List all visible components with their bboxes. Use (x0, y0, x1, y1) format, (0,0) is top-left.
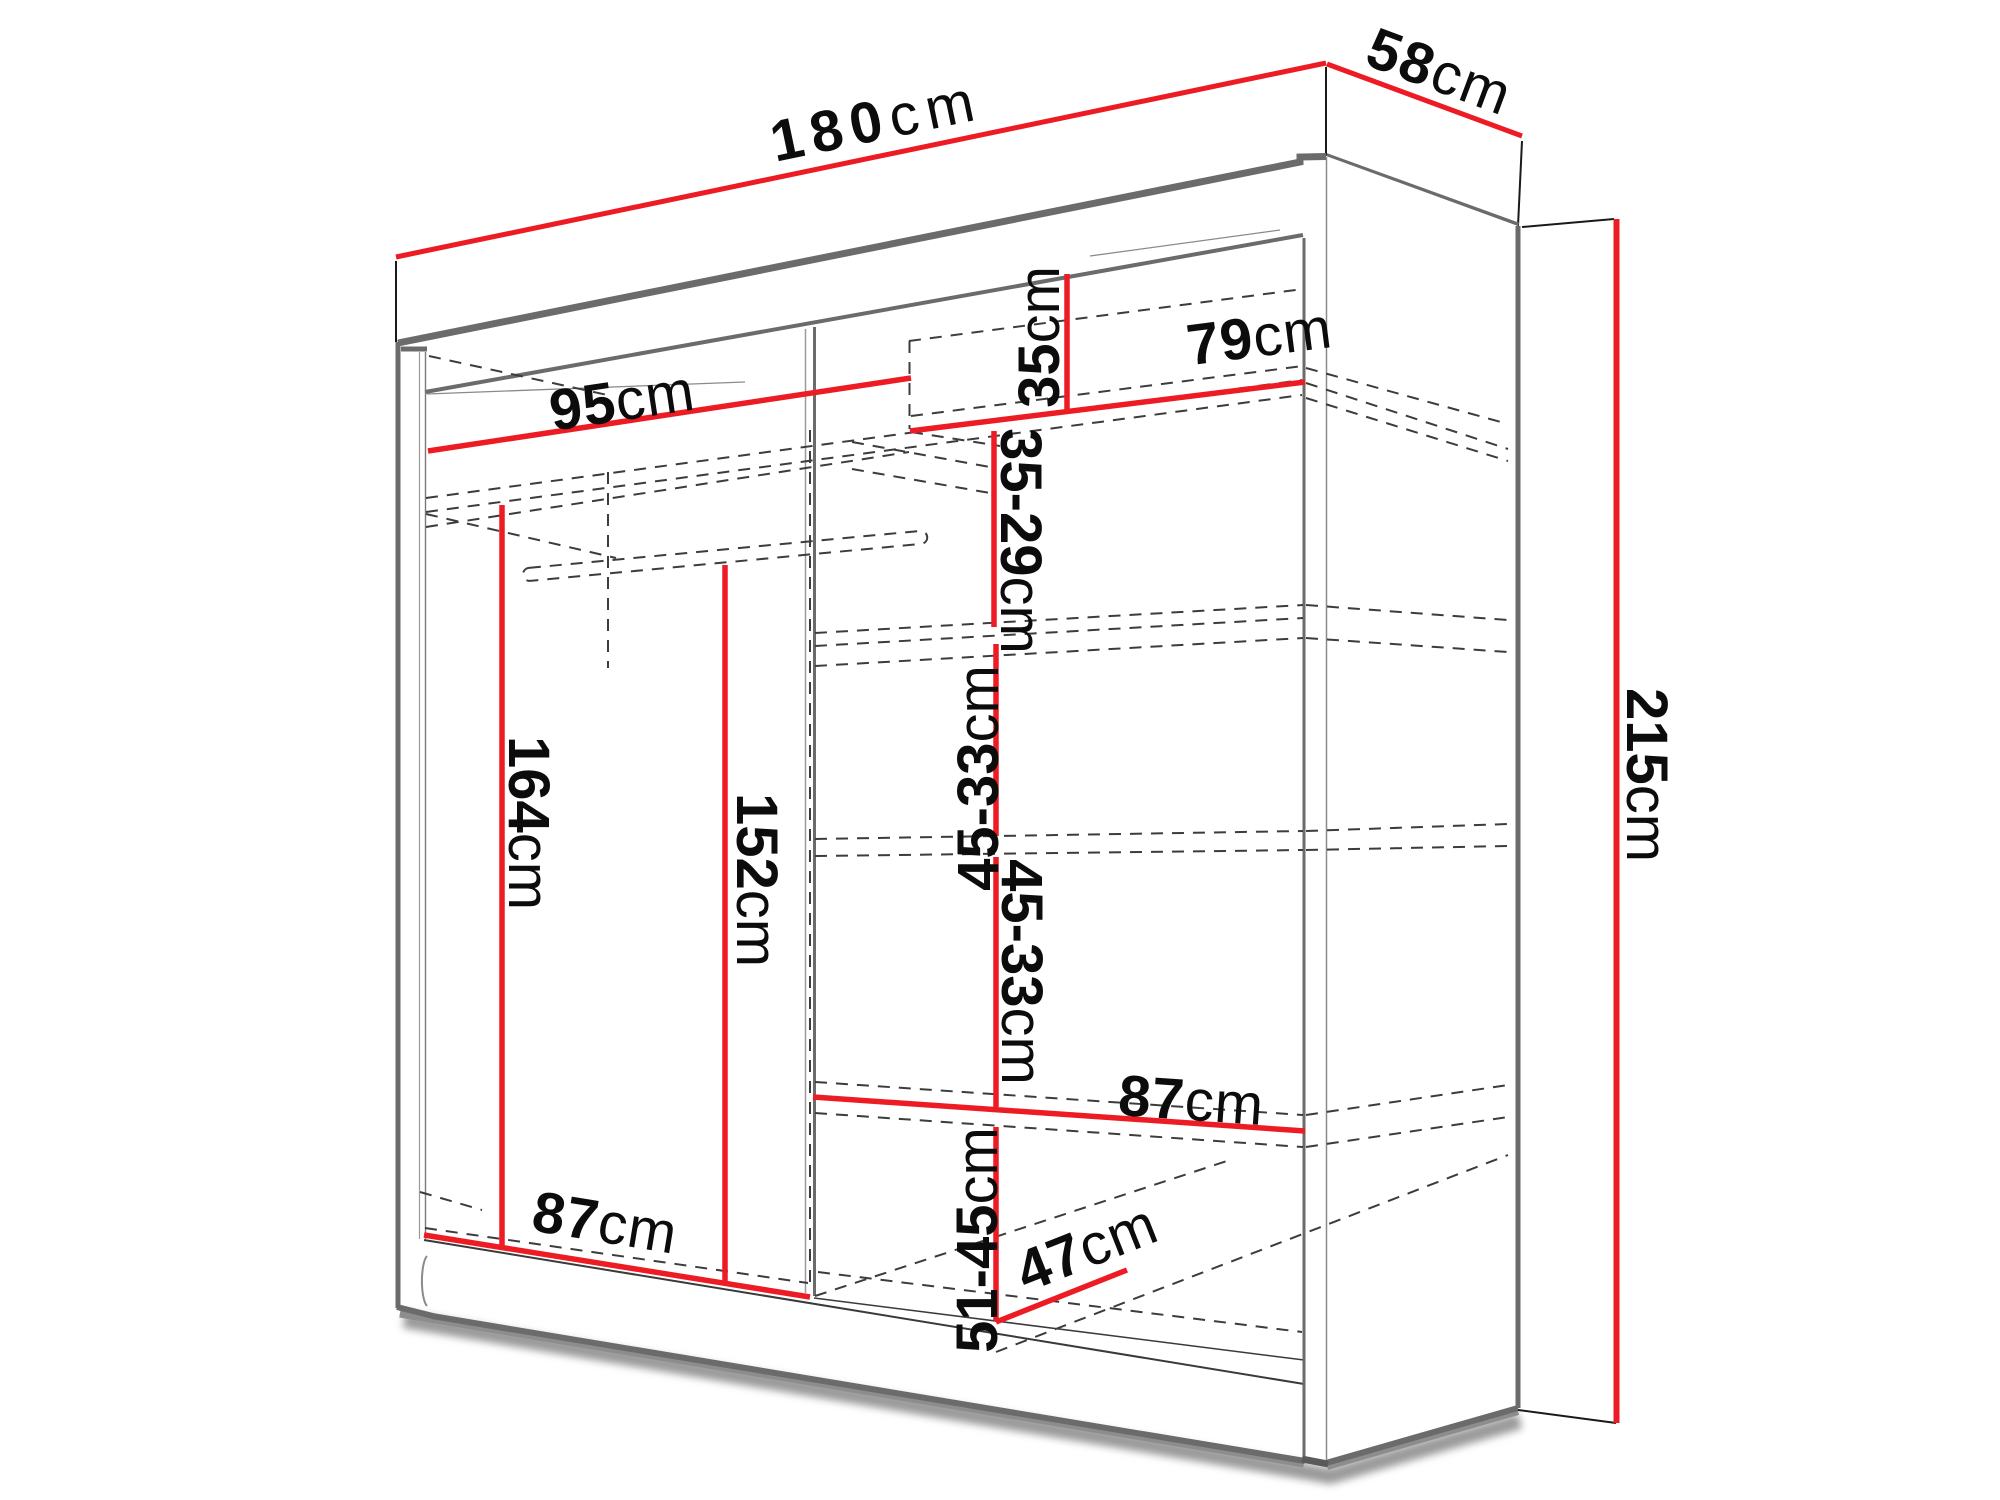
svg-text:45-33cm: 45-33cm (946, 665, 1011, 891)
svg-text:35cm: 35cm (1007, 266, 1072, 408)
svg-text:164cm: 164cm (496, 736, 561, 910)
svg-text:51-45cm: 51-45cm (945, 1127, 1010, 1353)
svg-text:35-29cm: 35-29cm (988, 428, 1053, 654)
svg-text:87cm: 87cm (1116, 1063, 1266, 1138)
svg-text:215cm: 215cm (1614, 688, 1679, 862)
svg-text:152cm: 152cm (724, 793, 789, 967)
svg-text:45-33cm: 45-33cm (989, 859, 1054, 1085)
